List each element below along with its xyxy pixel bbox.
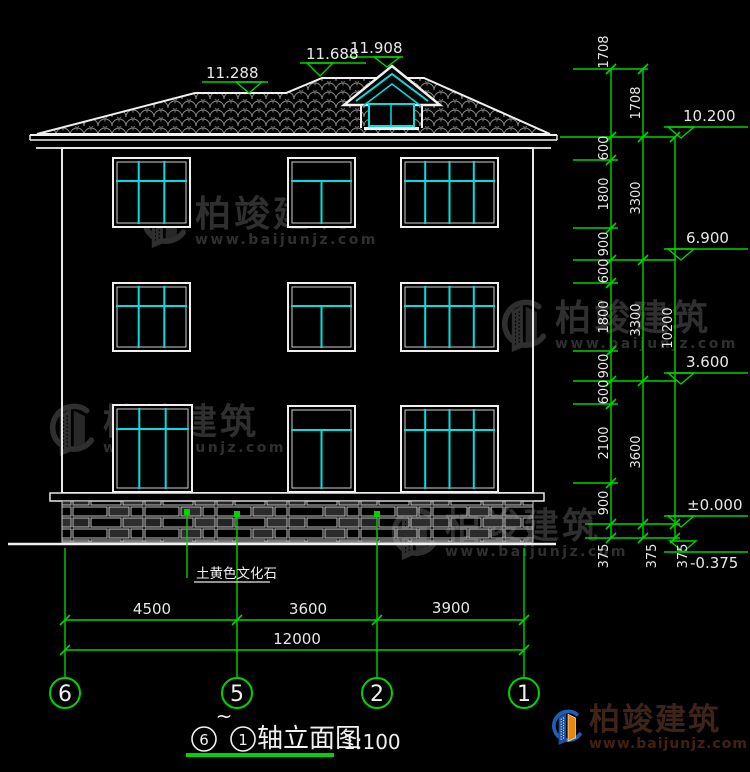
dim-value: 10200 [661,307,676,348]
title-bubble-from-label: 6 [199,731,209,749]
dim-value: 600 [597,136,612,161]
dim-value: 600 [597,259,612,284]
window [288,406,355,492]
dim-value: 2100 [597,426,612,459]
elevation-value: 3.600 [686,353,729,371]
window [401,406,498,492]
brand-logo-icon [548,696,583,760]
window [113,158,190,227]
elevation-marker [664,127,748,552]
grid-bubble-label: 2 [370,682,384,707]
drawing-title: 6 ~ 1 轴立面图 1:100 [192,704,401,754]
dim-value: 4500 [133,600,171,618]
title-scale: 1:100 [343,730,401,754]
dormer-sill [364,127,419,130]
dim-value: 1800 [597,177,612,210]
dim-value: 3300 [629,303,644,336]
dim-value: 12000 [273,630,321,648]
main-roof [37,78,550,134]
window [401,283,498,351]
dim-value: 900 [597,232,612,257]
dim-value: 1708 [597,35,612,68]
elevation-value: 11.288 [206,64,259,82]
culture-stone-base [62,501,533,542]
leader-dot [184,509,190,515]
dim-value: 3600 [289,600,327,618]
dim-value: 900 [597,491,612,516]
dim-value: 3600 [629,435,644,468]
elevation-value: -0.375 [690,554,738,572]
dim-value: 1708 [629,86,644,119]
elevation-value: 10.200 [683,107,736,125]
dim-value: 1800 [597,300,612,333]
elevation-value: 11.908 [350,39,403,57]
grid-bubble-label: 1 [517,682,531,707]
drawing-text: 11.288 11.688 11.908 10.200 6.900 3.600 … [58,35,743,754]
brand-logo: 柏竣建筑 www.baijunjz.com [548,686,748,770]
dim-value: 375 [597,544,612,569]
brand-name: 柏竣建筑 [589,704,748,737]
dim-value: 3900 [432,599,470,617]
window [288,283,355,351]
dim-value: 900 [597,354,612,379]
elevation-drawing-canvas: 柏竣建筑 www.baijunjz.com 柏竣建筑 www.baijunjz.… [0,0,750,772]
elevation-linework: 11.288 11.688 11.908 10.200 6.900 3.600 … [0,0,750,772]
material-label: 土黄色文化石 [196,565,277,582]
title-tilde: ~ [216,704,233,728]
elevation-value: 6.900 [686,229,729,247]
window [401,158,498,227]
window [288,158,355,227]
plinth-band [50,493,544,501]
window [113,283,190,351]
dim-value: 375 [676,544,691,569]
leader-dot [234,511,240,517]
brand-url: www.baijunjz.com [589,737,748,752]
dim-value: 3300 [629,181,644,214]
windows [113,158,498,492]
dim-value: 375 [645,544,660,569]
elevation-value: ±0.000 [687,496,743,514]
dim-value: 600 [597,380,612,405]
title-bubble-to-label: 1 [238,731,248,749]
leader-dot [374,511,380,517]
window [113,405,192,492]
grid-bubble-label: 6 [58,682,72,707]
